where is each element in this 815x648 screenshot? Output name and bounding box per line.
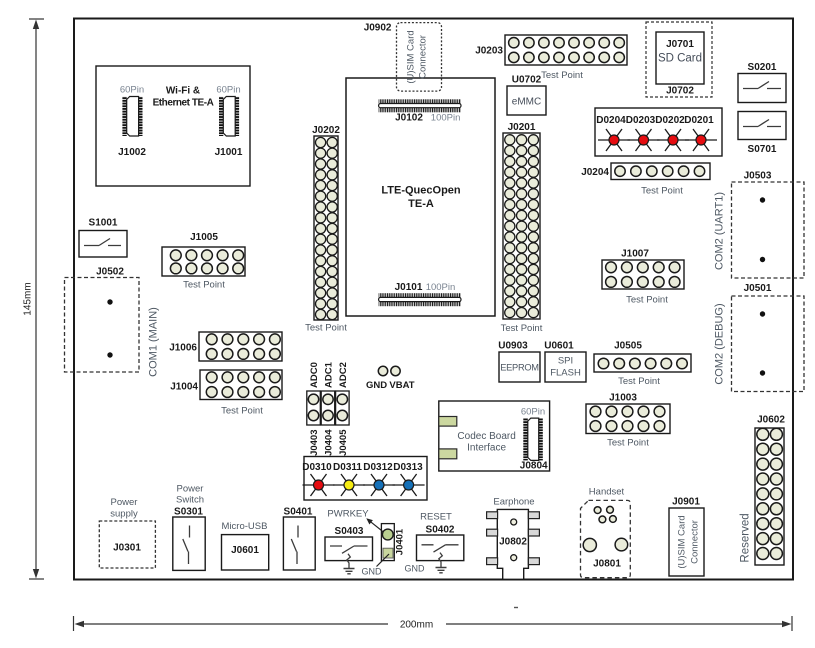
svg-text:U0702: U0702 xyxy=(512,75,542,86)
svg-text:S0403: S0403 xyxy=(335,526,364,537)
svg-text:Interface: Interface xyxy=(467,443,506,454)
svg-text:J1005: J1005 xyxy=(190,232,218,243)
svg-text:S0401: S0401 xyxy=(284,507,313,518)
svg-text:J0602: J0602 xyxy=(757,415,785,426)
svg-text:J0901: J0901 xyxy=(672,497,700,508)
svg-text:200mm: 200mm xyxy=(400,620,433,631)
svg-text:60Pin: 60Pin xyxy=(216,85,240,96)
svg-text:D0201: D0201 xyxy=(684,115,714,126)
svg-text:S0701: S0701 xyxy=(748,144,777,155)
svg-text:Power: Power xyxy=(177,484,204,495)
svg-text:S0301: S0301 xyxy=(174,507,203,518)
svg-text:D0311: D0311 xyxy=(333,462,362,473)
svg-text:J0403: J0403 xyxy=(309,430,320,456)
svg-text:J1007: J1007 xyxy=(621,249,649,260)
svg-text:S0201: S0201 xyxy=(748,62,777,73)
svg-text:COM2 (UART1): COM2 (UART1) xyxy=(714,192,726,270)
svg-text:J0202: J0202 xyxy=(312,125,340,136)
svg-text:D0203: D0203 xyxy=(626,115,656,126)
svg-text:Test Point: Test Point xyxy=(641,186,683,197)
svg-text:J1004: J1004 xyxy=(170,382,198,393)
svg-text:ADC0: ADC0 xyxy=(309,362,320,388)
svg-text:(U)SIM Card: (U)SIM Card xyxy=(677,515,688,568)
svg-text:Power: Power xyxy=(111,497,138,508)
svg-text:J0101: J0101 xyxy=(395,282,423,293)
svg-text:Test Point: Test Point xyxy=(541,70,583,81)
svg-text:J0505: J0505 xyxy=(614,341,642,352)
svg-text:Test Point: Test Point xyxy=(183,280,225,291)
svg-text:100Pin: 100Pin xyxy=(431,113,461,124)
svg-text:ADC1: ADC1 xyxy=(324,361,335,388)
svg-text:Ethernet TE-A: Ethernet TE-A xyxy=(153,98,214,109)
svg-text:COM1 (MAIN): COM1 (MAIN) xyxy=(148,307,160,377)
svg-text:GND: GND xyxy=(362,567,383,577)
svg-text:Micro-USB: Micro-USB xyxy=(222,521,268,532)
svg-text:Test Point: Test Point xyxy=(626,295,668,306)
svg-text:S1001: S1001 xyxy=(89,218,118,229)
svg-text:D0313: D0313 xyxy=(393,462,423,473)
svg-text:D0204: D0204 xyxy=(596,115,626,126)
svg-text:Test Point: Test Point xyxy=(305,323,347,334)
svg-text:J1003: J1003 xyxy=(609,393,637,404)
svg-text:100Pin: 100Pin xyxy=(426,282,456,293)
svg-text:SD Card: SD Card xyxy=(658,53,702,65)
svg-text:Handset: Handset xyxy=(589,487,625,498)
svg-text:J0601: J0601 xyxy=(231,545,259,556)
svg-text:Codec Board: Codec Board xyxy=(457,431,515,442)
svg-text:Test Point: Test Point xyxy=(501,323,543,334)
svg-text:D0310: D0310 xyxy=(302,462,332,473)
svg-text:EEPROM: EEPROM xyxy=(500,363,539,373)
svg-text:(U)SIM Card: (U)SIM Card xyxy=(406,30,417,83)
svg-text:J0201: J0201 xyxy=(508,122,536,133)
svg-text:S0402: S0402 xyxy=(426,525,455,536)
svg-text:GND: GND xyxy=(405,564,426,574)
svg-text:J0804: J0804 xyxy=(520,461,548,472)
svg-text:U0903: U0903 xyxy=(498,341,528,352)
svg-text:J1002: J1002 xyxy=(118,147,146,158)
svg-text:J0404: J0404 xyxy=(324,429,335,456)
svg-text:U0601: U0601 xyxy=(544,341,574,352)
svg-text:J0702: J0702 xyxy=(666,86,694,97)
svg-text:LTE-QuecOpen: LTE-QuecOpen xyxy=(381,185,461,197)
svg-text:FLASH: FLASH xyxy=(550,368,581,379)
svg-text:J0204: J0204 xyxy=(581,167,609,178)
svg-text:COM2 (DEBUG): COM2 (DEBUG) xyxy=(714,303,726,384)
svg-text:Test Point: Test Point xyxy=(221,406,263,417)
svg-text:Test Point: Test Point xyxy=(607,438,649,449)
svg-text:Test Point: Test Point xyxy=(618,376,660,387)
svg-text:J0401: J0401 xyxy=(395,528,406,555)
svg-text:RESET: RESET xyxy=(420,512,452,523)
svg-text:J0203: J0203 xyxy=(475,46,503,57)
svg-text:J0801: J0801 xyxy=(593,559,621,570)
svg-text:Switch: Switch xyxy=(176,495,204,506)
svg-text:J1006: J1006 xyxy=(169,343,197,354)
svg-text:Reserved: Reserved xyxy=(740,513,752,562)
svg-text:SPI: SPI xyxy=(558,356,573,367)
svg-text:supply: supply xyxy=(110,509,138,520)
svg-text:D0312: D0312 xyxy=(363,462,393,473)
svg-text:J0502: J0502 xyxy=(96,267,124,278)
svg-text:Earphone: Earphone xyxy=(493,497,534,508)
svg-text:Connector: Connector xyxy=(690,520,701,564)
svg-text:Wi-Fi &: Wi-Fi & xyxy=(166,86,200,97)
svg-text:145mm: 145mm xyxy=(23,282,34,315)
svg-text:VBAT: VBAT xyxy=(389,380,414,391)
svg-text:60Pin: 60Pin xyxy=(120,85,144,96)
svg-text:60Pin: 60Pin xyxy=(521,407,545,418)
svg-text:ADC2: ADC2 xyxy=(338,362,349,388)
svg-text:GND: GND xyxy=(366,380,387,391)
svg-text:J0802: J0802 xyxy=(499,537,527,548)
svg-text:Connector: Connector xyxy=(418,35,429,79)
svg-text:J0501: J0501 xyxy=(744,283,772,294)
svg-text:TE-A: TE-A xyxy=(408,198,434,210)
svg-text:eMMC: eMMC xyxy=(512,97,541,108)
svg-text:J0102: J0102 xyxy=(395,113,423,124)
svg-text:J0503: J0503 xyxy=(744,171,772,182)
svg-text:D0202: D0202 xyxy=(655,115,685,126)
svg-text:J1001: J1001 xyxy=(215,147,243,158)
svg-text:J0301: J0301 xyxy=(113,543,141,554)
svg-text:J0405: J0405 xyxy=(338,429,349,456)
svg-text:J0701: J0701 xyxy=(666,39,694,50)
svg-text:PWRKEY: PWRKEY xyxy=(327,509,369,520)
svg-text:J0902: J0902 xyxy=(364,23,392,34)
